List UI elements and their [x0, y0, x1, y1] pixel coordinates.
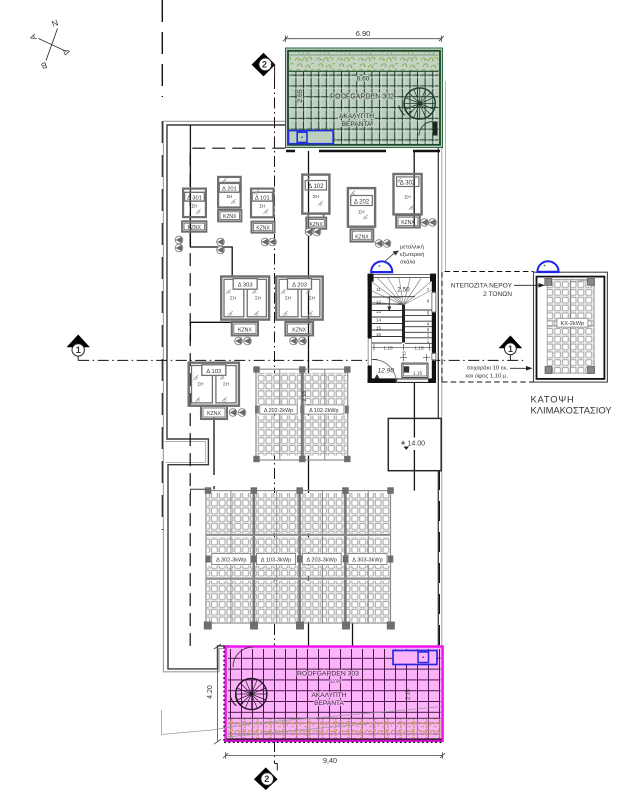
svg-text:16: 16 [376, 332, 381, 337]
svg-text:Δ 303-3kWp: Δ 303-3kWp [352, 558, 382, 564]
svg-text:Δ 202-2kWp: Δ 202-2kWp [264, 408, 293, 414]
svg-text:τοιχαράκι 10 εκ.: τοιχαράκι 10 εκ. [467, 365, 509, 372]
svg-text:Δ 301: Δ 301 [187, 196, 202, 202]
svg-text:14.00: 14.00 [408, 440, 426, 447]
svg-text:μεταλλική: μεταλλική [400, 244, 424, 251]
svg-text:Δ 202: Δ 202 [354, 199, 370, 205]
svg-text:ΣΗ: ΣΗ [358, 209, 364, 214]
svg-text:Δ 201: Δ 201 [222, 187, 237, 193]
svg-text:ΚΖΝΧ: ΚΖΝΧ [207, 411, 221, 417]
svg-text:6.90: 6.90 [356, 29, 371, 38]
svg-text:12: 12 [376, 299, 381, 304]
svg-text:2.50: 2.50 [397, 287, 410, 294]
svg-text:ΣΗ: ΣΗ [226, 194, 232, 199]
svg-text:2 ΤΟΝΩΝ: 2 ΤΟΝΩΝ [483, 291, 512, 298]
svg-text:ΣΗ: ΣΗ [285, 296, 291, 301]
svg-text:Δ 101: Δ 101 [255, 196, 270, 202]
svg-text:2.15: 2.15 [302, 391, 308, 402]
svg-text:Δ 203-3kWp: Δ 203-3kWp [306, 558, 336, 564]
svg-text:ΑΚΑΛΥΠΤΗ: ΑΚΑΛΥΠΤΗ [339, 113, 374, 120]
svg-text:ΣΗ: ΣΗ [405, 195, 411, 200]
svg-text:ΣΗ: ΣΗ [313, 194, 319, 199]
svg-text:Δ 102-2kWp: Δ 102-2kWp [309, 408, 338, 414]
svg-text:Δ 302-3kWp: Δ 302-3kWp [216, 558, 246, 564]
svg-text:Δ 302: Δ 302 [400, 180, 416, 186]
svg-text:Δ 103: Δ 103 [206, 369, 221, 375]
svg-text:ΚΖΝΧ: ΚΖΝΧ [355, 234, 369, 240]
svg-text:ΚΛΙΜΑΚΟΣΤΑΣΙΟΥ: ΚΛΙΜΑΚΟΣΤΑΣΙΟΥ [531, 405, 613, 416]
svg-text:2.65: 2.65 [297, 89, 304, 102]
svg-text:εξωτερική: εξωτερική [400, 251, 424, 258]
svg-text:ΚΖΝΧ: ΚΖΝΧ [223, 214, 237, 220]
svg-text:1.15: 1.15 [413, 371, 423, 377]
svg-text:ΝΤΕΠΟΖΙΤΑ ΝΕΡΟΥ: ΝΤΕΠΟΖΙΤΑ ΝΕΡΟΥ [451, 283, 513, 290]
svg-text:ΚΖΝΧ: ΚΖΝΧ [292, 327, 306, 333]
svg-text:ΚΖΝΧ: ΚΖΝΧ [238, 327, 252, 333]
svg-text:1: 1 [76, 345, 81, 355]
svg-text:ΚΖΝΧ: ΚΖΝΧ [401, 220, 415, 226]
svg-text:Δ 102: Δ 102 [308, 184, 324, 190]
svg-text:ΣΗ: ΣΗ [230, 296, 236, 301]
svg-text:Δ 203: Δ 203 [292, 283, 307, 289]
svg-text:ΣΗ: ΣΗ [198, 382, 204, 387]
svg-text:2.15: 2.15 [406, 689, 412, 700]
svg-text:ΣΗ: ΣΗ [309, 296, 315, 301]
svg-text:2: 2 [262, 60, 267, 70]
svg-text:ΚΖΝΧ: ΚΖΝΧ [256, 225, 270, 231]
svg-text:ΣΗ: ΣΗ [255, 296, 261, 301]
svg-text:13: 13 [376, 309, 381, 314]
svg-text:ΑΚΑΛΥΠΤΗ: ΑΚΑΛΥΠΤΗ [311, 692, 346, 699]
svg-text:ΣΗ: ΣΗ [192, 203, 198, 208]
svg-text:ΒΕΡΑΝΤΑ: ΒΕΡΑΝΤΑ [314, 700, 344, 707]
svg-text:11: 11 [376, 287, 381, 292]
svg-text:ΚΧ-2kWp: ΚΧ-2kWp [560, 321, 584, 327]
svg-text:2: 2 [264, 774, 269, 784]
svg-text:ΚΖΝΧ: ΚΖΝΧ [310, 222, 324, 228]
svg-text:15: 15 [376, 325, 381, 330]
svg-text:4.20: 4.20 [207, 685, 214, 699]
svg-text:9,40: 9,40 [323, 756, 337, 765]
svg-text:1: 1 [508, 344, 513, 354]
svg-text:και ύψος 1,10 μ.: και ύψος 1,10 μ. [465, 373, 508, 380]
svg-text:ΚΖΝΧ: ΚΖΝΧ [188, 225, 202, 231]
svg-text:Δ 303: Δ 303 [238, 283, 253, 289]
svg-text:ROOFGARDEN 303: ROOFGARDEN 303 [297, 671, 359, 678]
svg-text:ROOFGARDEN 302: ROOFGARDEN 302 [330, 94, 394, 101]
svg-text:1.15: 1.15 [414, 346, 424, 352]
svg-text:14: 14 [376, 317, 381, 322]
svg-text:12.90: 12.90 [330, 679, 342, 684]
svg-text:1.15: 1.15 [383, 346, 393, 352]
svg-text:σκάλα: σκάλα [400, 259, 416, 266]
svg-text:ΚΑΤΟΨΗ: ΚΑΤΟΨΗ [531, 394, 575, 405]
svg-text:12.90: 12.90 [378, 367, 395, 374]
svg-text:+: + [401, 439, 406, 448]
svg-text:ΣΗ: ΣΗ [259, 203, 265, 208]
svg-text:Δ 103-3kWp: Δ 103-3kWp [261, 558, 291, 564]
svg-text:6.60: 6.60 [357, 76, 370, 83]
svg-text:ΒΕΡΑΝΤΑ: ΒΕΡΑΝΤΑ [342, 121, 372, 128]
svg-text:ΣΗ: ΣΗ [223, 382, 229, 387]
